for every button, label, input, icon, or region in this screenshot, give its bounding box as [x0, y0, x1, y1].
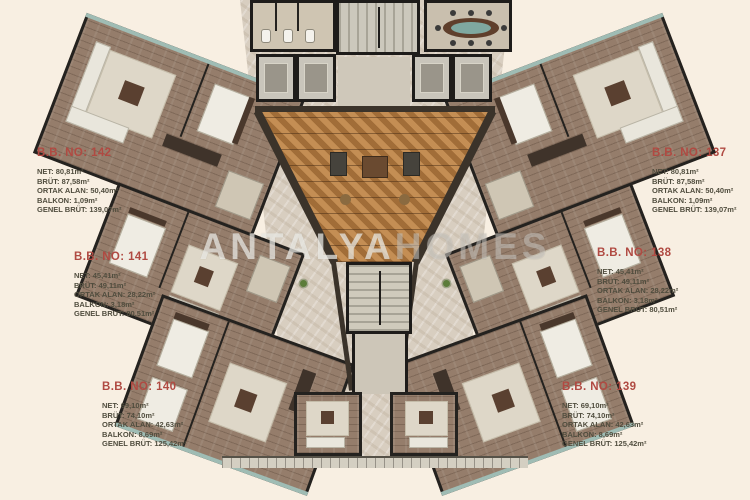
- lobby-armchair-left: [330, 152, 347, 176]
- elevator-4: [452, 54, 492, 102]
- unit-label-140: B.B. NO: 140 NET: 69,10m² BRÜT: 74,10m² …: [102, 381, 186, 449]
- elevator-2: [296, 54, 336, 102]
- unit-label-139: B.B. NO: 139 NET: 69,10m² BRÜT: 74,10m² …: [562, 381, 646, 449]
- elevator-1: [256, 54, 296, 102]
- lobby-top-border: [255, 106, 495, 113]
- unit-ortak-alan: ORTAK ALAN: 50,40m²: [37, 186, 121, 196]
- unit-ortak-alan: ORTAK ALAN: 28,22m²: [74, 290, 155, 300]
- plant-right: [443, 280, 450, 287]
- plant-left: [300, 280, 307, 287]
- unit-number: B.B. NO: 138: [597, 247, 678, 259]
- unit-balkon: BALKON: 1,09m²: [37, 196, 121, 206]
- unit-brut: BRÜT: 74,10m²: [102, 411, 186, 421]
- meeting-room: [424, 0, 512, 52]
- unit-label-137: B.B. NO: 137 NET: 80,81m² BRÜT: 87,58m² …: [652, 147, 736, 215]
- unit-balkon: BALKON: 3,18m²: [74, 300, 155, 310]
- unit-label-138: B.B. NO: 138 NET: 45,41m² BRÜT: 49,11m² …: [597, 247, 678, 315]
- unit-genel-brut: GENEL BRÜT: 139,07m²: [652, 205, 736, 215]
- unit-net: NET: 80,81m²: [37, 167, 121, 177]
- unit-ortak-alan: ORTAK ALAN: 42,63m²: [562, 420, 646, 430]
- unit-genel-brut: GENEL BRÜT: 139,07m²: [37, 205, 121, 215]
- living-room-left: [294, 392, 362, 456]
- unit-label-141: B.B. NO: 141 NET: 45,41m² BRÜT: 49,11m² …: [74, 251, 155, 319]
- unit-number: B.B. NO: 141: [74, 251, 155, 263]
- unit-balkon: BALKON: 8,69m²: [102, 430, 186, 440]
- lobby-armchair-right: [403, 152, 420, 176]
- unit-genel-brut: GENEL BRÜT: 125,42m²: [102, 439, 186, 449]
- unit-genel-brut: GENEL BRÜT: 80,51m²: [597, 305, 678, 315]
- unit-brut: BRÜT: 49,11m²: [74, 281, 155, 291]
- unit-ortak-alan: ORTAK ALAN: 42,63m²: [102, 420, 186, 430]
- lobby-center-table: [362, 156, 388, 178]
- unit-genel-brut: GENEL BRÜT: 80,51m²: [74, 309, 155, 319]
- meeting-chairs: [468, 25, 474, 31]
- unit-balkon: BALKON: 1,09m²: [652, 196, 736, 206]
- elevator-lobby: [338, 57, 410, 109]
- floor-plan-canvas: ANTALYAHOMES B.B. NO: 142 NET: 80,81m² B…: [0, 0, 750, 500]
- main-staircase-top: [336, 0, 420, 55]
- unit-net: NET: 69,10m²: [562, 401, 646, 411]
- unit-brut: BRÜT: 87,58m²: [652, 177, 736, 187]
- unit-number: B.B. NO: 139: [562, 381, 646, 393]
- unit-net: NET: 45,41m²: [597, 267, 678, 277]
- living-room-right: [390, 392, 458, 456]
- unit-ortak-alan: ORTAK ALAN: 28,22m²: [597, 286, 678, 296]
- balcony-strip: [222, 456, 528, 468]
- unit-brut: BRÜT: 74,10m²: [562, 411, 646, 421]
- unit-net: NET: 45,41m²: [74, 271, 155, 281]
- unit-number: B.B. NO: 140: [102, 381, 186, 393]
- unit-net: NET: 80,81m²: [652, 167, 736, 177]
- lobby-side-table-right: [399, 194, 410, 205]
- staircase-bottom: [346, 262, 412, 334]
- bottom-hall: [352, 334, 408, 394]
- unit-number: B.B. NO: 137: [652, 147, 736, 159]
- unit-balkon: BALKON: 3,18m²: [597, 296, 678, 306]
- unit-label-142: B.B. NO: 142 NET: 80,81m² BRÜT: 87,58m² …: [37, 147, 121, 215]
- unit-balkon: BALKON: 8,69m²: [562, 430, 646, 440]
- unit-number: B.B. NO: 142: [37, 147, 121, 159]
- elevator-3: [412, 54, 452, 102]
- unit-net: NET: 69,10m²: [102, 401, 186, 411]
- unit-genel-brut: GENEL BRÜT: 125,42m²: [562, 439, 646, 449]
- unit-ortak-alan: ORTAK ALAN: 50,40m²: [652, 186, 736, 196]
- unit-brut: BRÜT: 49,11m²: [597, 277, 678, 287]
- unit-brut: BRÜT: 87,58m²: [37, 177, 121, 187]
- lobby-side-table-left: [340, 194, 351, 205]
- wc-block: [250, 0, 336, 52]
